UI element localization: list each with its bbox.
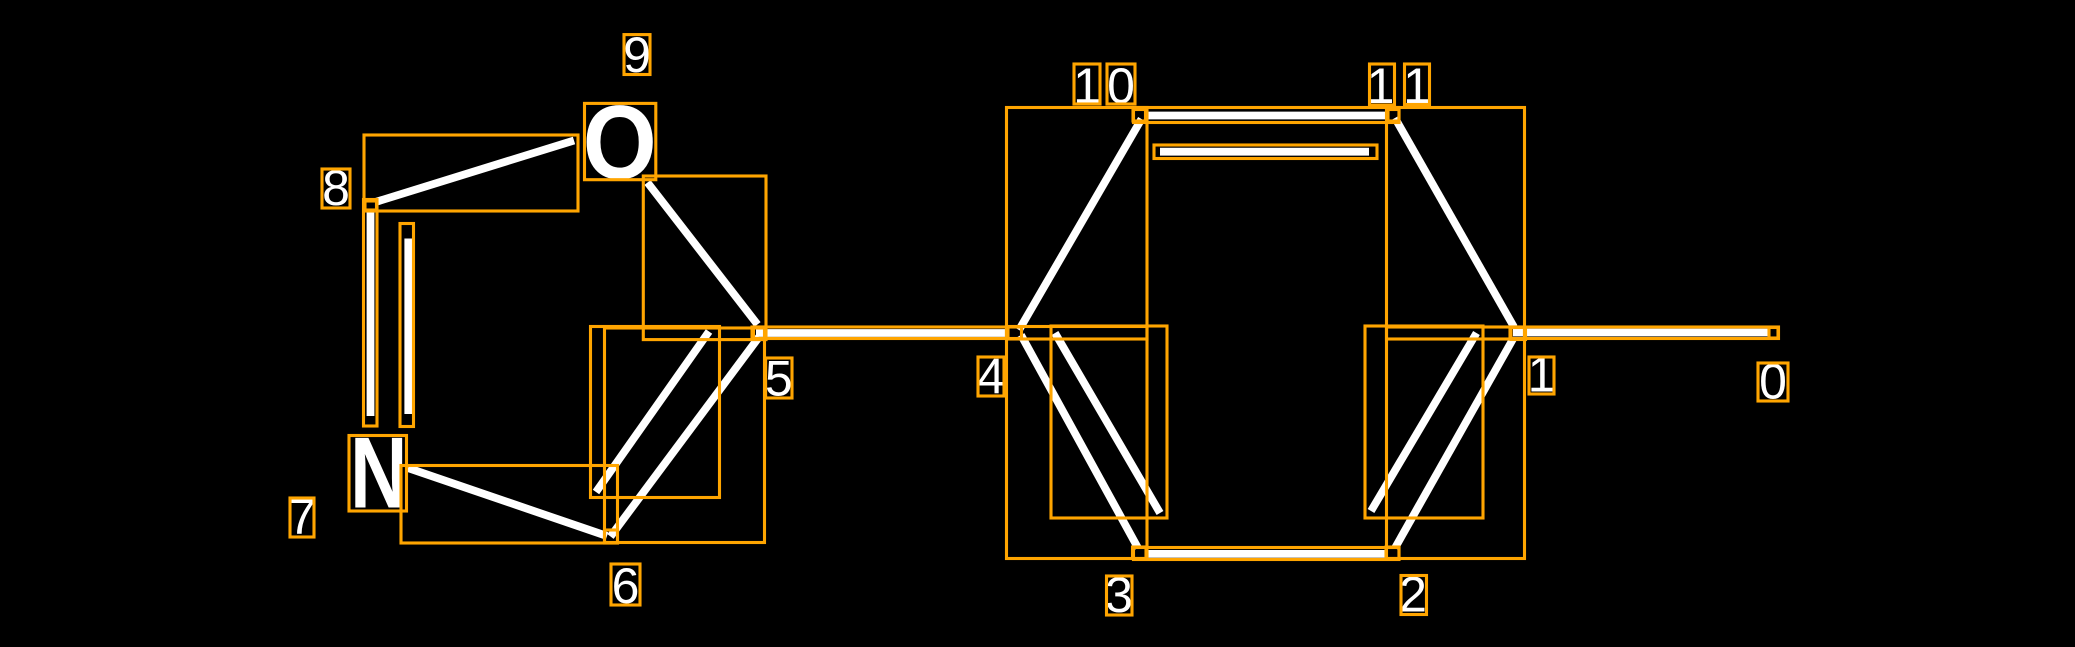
svg-text:1: 1 (1073, 58, 1101, 114)
svg-text:0: 0 (1107, 58, 1135, 114)
